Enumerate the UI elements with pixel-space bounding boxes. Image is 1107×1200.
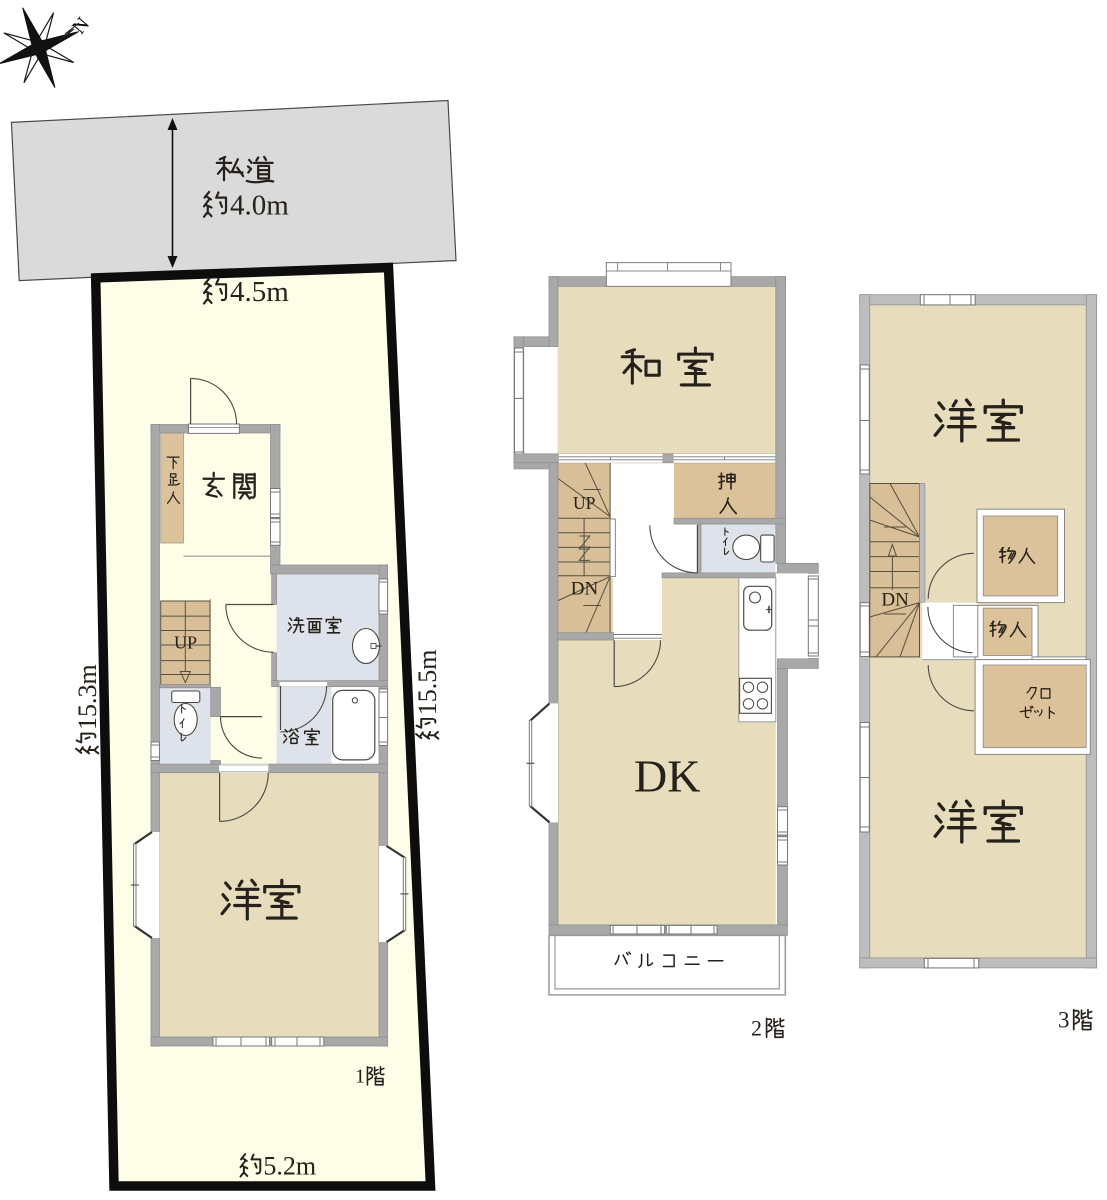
svg-text:5.2m: 5.2m	[263, 1151, 316, 1180]
svg-text:3: 3	[1058, 1008, 1070, 1033]
svg-text:DK: DK	[634, 750, 700, 801]
svg-text:DN: DN	[881, 590, 909, 611]
svg-text:15.3m: 15.3m	[73, 664, 102, 730]
svg-text:UP: UP	[573, 493, 596, 513]
svg-text:1: 1	[355, 1066, 365, 1088]
svg-text:2: 2	[751, 1016, 762, 1041]
svg-text:15.5m: 15.5m	[413, 650, 442, 716]
svg-text:UP: UP	[174, 632, 197, 652]
svg-text:DN: DN	[571, 579, 599, 600]
svg-text:4.5m: 4.5m	[230, 276, 289, 308]
svg-text:4.0m: 4.0m	[230, 189, 289, 221]
